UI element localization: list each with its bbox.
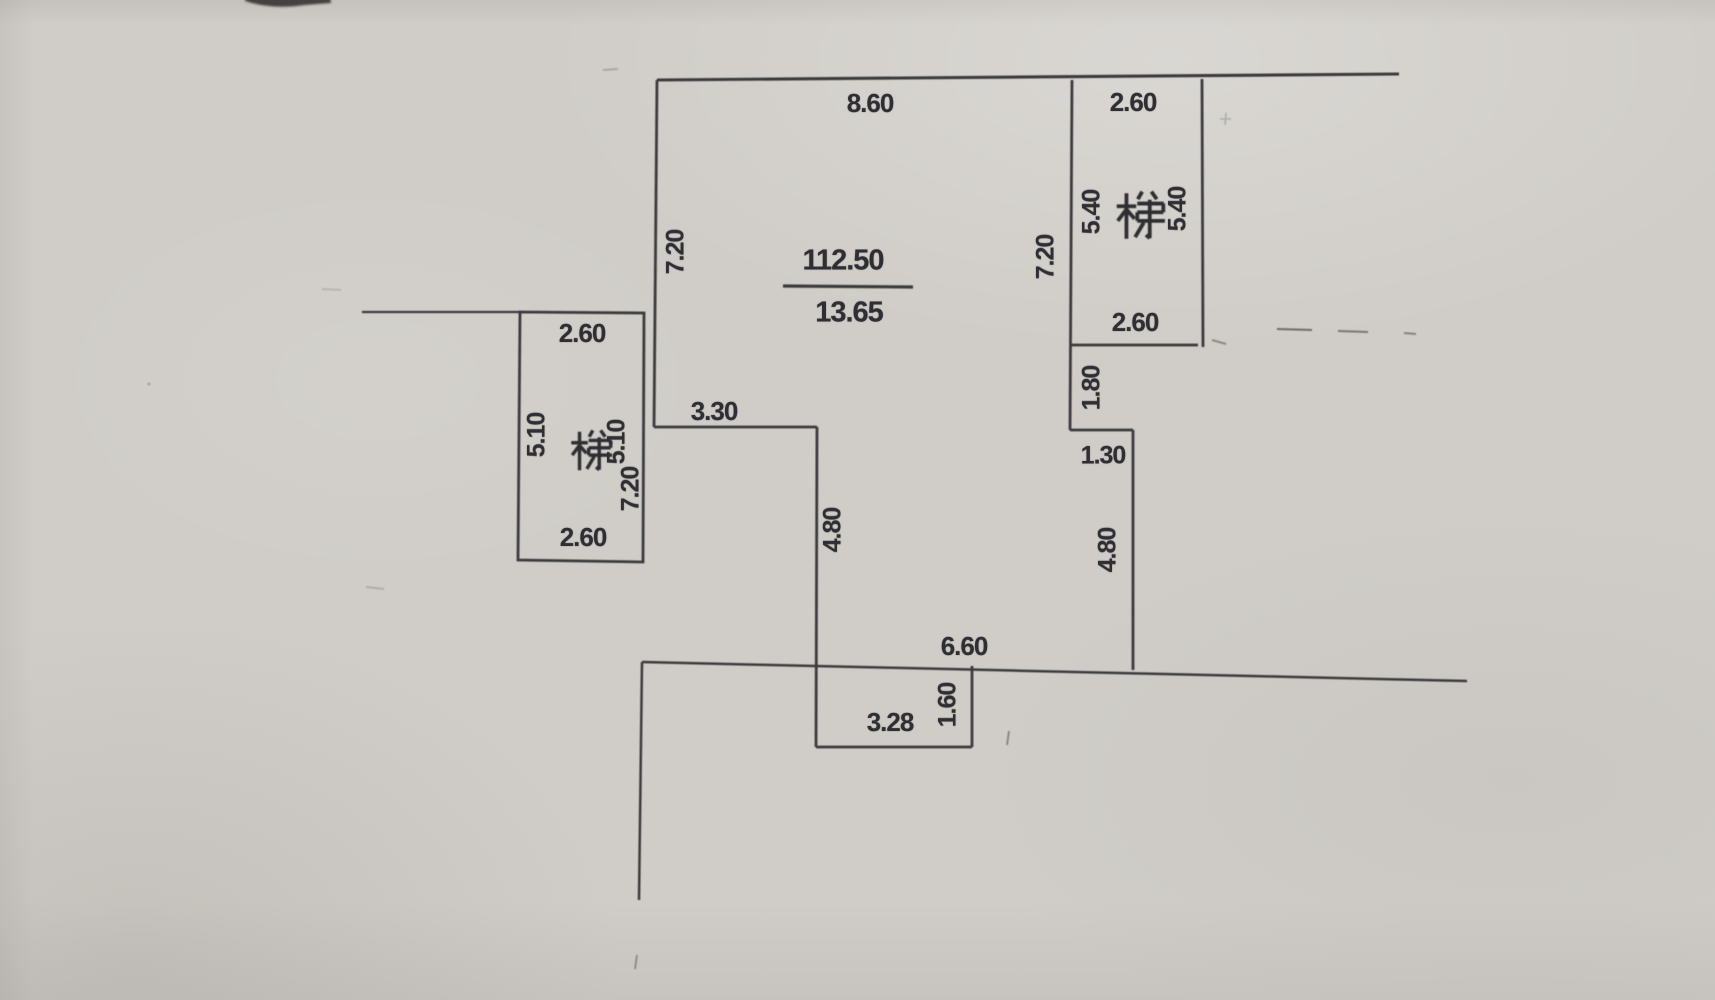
wall-right-stair-right <box>1202 79 1203 347</box>
stairs-character-left <box>569 428 613 474</box>
area-numerator: 112.50 <box>802 247 883 276</box>
area-denominator: 13.65 <box>815 299 883 328</box>
faint-dash <box>366 587 384 589</box>
wall-inner-step-down <box>816 427 817 747</box>
faint-dash <box>1277 329 1312 330</box>
dim-right-lower-height: 4.80 <box>1096 528 1121 573</box>
dim-main-left-height: 7.20 <box>664 230 689 275</box>
dim-right-stair-right: 5.40 <box>1166 187 1191 232</box>
boundary-bottom-left-vertical <box>639 662 642 900</box>
wall-main-left <box>654 80 657 427</box>
faint-smudge <box>1212 340 1226 344</box>
dim-left-stair-top: 2.60 <box>559 320 606 346</box>
dim-right-stair-top: 2.60 <box>1110 89 1157 115</box>
dim-left-wall-height: 7.20 <box>619 467 644 512</box>
stairs-character-right <box>1114 189 1166 243</box>
faint-dash <box>322 289 341 290</box>
faint-dot <box>147 382 150 385</box>
scanned-floor-plan: 8.60 2.60 7.20 5.40 5.40 7.20 112.50 13.… <box>0 0 1715 1000</box>
dim-notch-height: 1.60 <box>936 683 961 728</box>
faint-dash <box>603 69 618 70</box>
faint-tick <box>1007 731 1009 745</box>
faint-dash <box>1338 331 1368 332</box>
dim-right-stair-left: 5.40 <box>1080 190 1105 235</box>
faint-plus-mark <box>1220 113 1231 125</box>
faint-dash <box>1404 333 1416 334</box>
wall-lines <box>362 74 1467 900</box>
dim-main-top-width: 8.60 <box>847 90 894 116</box>
dim-main-right-height: 7.20 <box>1034 235 1059 280</box>
faint-marks <box>147 69 1416 969</box>
dim-right-stair-bottom: 2.60 <box>1112 309 1159 335</box>
dim-right-step-width: 1.30 <box>1081 444 1126 469</box>
area-fraction-bar <box>783 286 913 287</box>
dim-bottom-width: 6.60 <box>941 633 988 659</box>
boundary-bottom <box>642 662 1467 681</box>
scan-smudge-top <box>245 0 331 7</box>
dim-inner-step-height: 4.80 <box>821 508 846 553</box>
dim-left-stair-inner: 5.10 <box>525 413 550 458</box>
dim-right-drop: 1.80 <box>1080 366 1105 411</box>
dim-inner-step-width: 3.30 <box>691 398 738 424</box>
dim-left-stair-bottom: 2.60 <box>560 524 607 550</box>
wall-top <box>657 74 1399 80</box>
faint-tick <box>635 955 637 969</box>
dim-notch-width: 3.28 <box>867 709 914 735</box>
floor-plan-drawing <box>0 0 1715 1000</box>
wall-right-stair-left <box>1070 80 1072 430</box>
